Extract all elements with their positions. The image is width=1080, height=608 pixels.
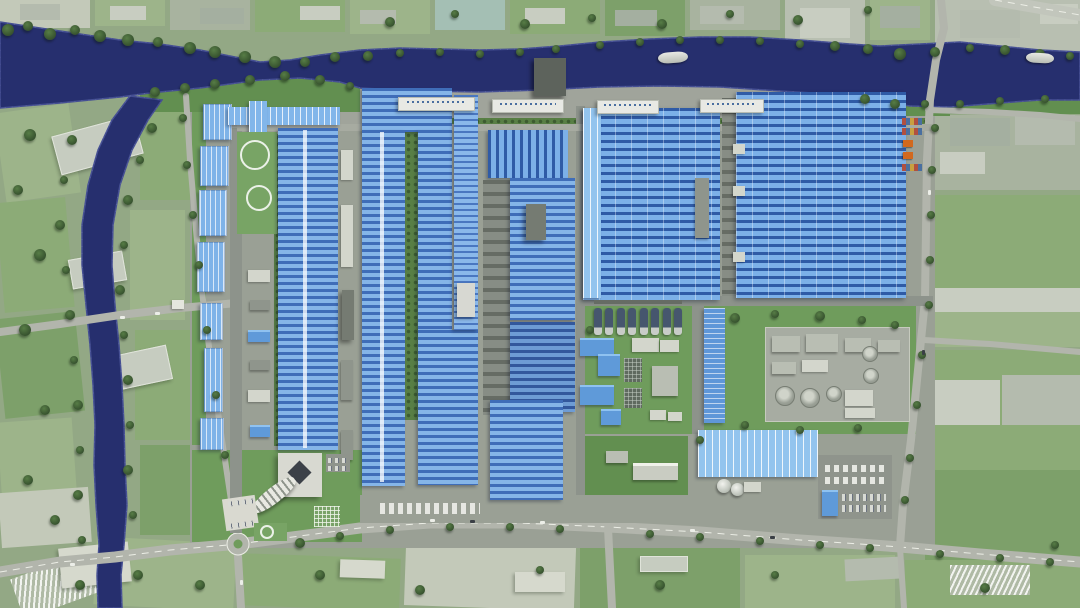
hall-b-ridge bbox=[380, 132, 384, 482]
truck-parking-row bbox=[825, 477, 885, 484]
tree bbox=[115, 285, 125, 295]
tree bbox=[586, 326, 594, 334]
clarifier-tank bbox=[775, 386, 795, 406]
tree bbox=[183, 161, 191, 169]
tree bbox=[906, 454, 914, 462]
tree bbox=[588, 14, 596, 22]
vent-unit bbox=[733, 186, 745, 196]
tree bbox=[123, 375, 133, 385]
small-hall bbox=[200, 303, 223, 340]
hall-d1-edge bbox=[583, 108, 601, 298]
tree bbox=[363, 51, 373, 61]
tree bbox=[75, 580, 85, 590]
car bbox=[70, 563, 75, 566]
tank-block bbox=[772, 362, 796, 374]
tree bbox=[78, 536, 86, 544]
tree bbox=[446, 523, 454, 531]
tree bbox=[925, 301, 933, 309]
tree bbox=[76, 446, 84, 454]
tree bbox=[516, 48, 524, 56]
tree bbox=[50, 515, 60, 525]
tree bbox=[126, 421, 134, 429]
cooling-pad bbox=[624, 388, 642, 408]
boiler-unit bbox=[640, 308, 648, 335]
tree bbox=[60, 176, 68, 184]
tree bbox=[336, 532, 344, 540]
gas-sphere bbox=[731, 483, 744, 496]
barge bbox=[1026, 52, 1054, 63]
tree bbox=[830, 41, 840, 51]
hall-c-low bbox=[510, 322, 575, 412]
tank-block bbox=[845, 408, 875, 418]
tree bbox=[1000, 45, 1010, 55]
tree bbox=[696, 533, 704, 541]
tree bbox=[184, 42, 196, 54]
tree bbox=[120, 241, 128, 249]
utility-shed bbox=[632, 338, 659, 352]
car bbox=[155, 312, 160, 315]
gas-cylinder bbox=[744, 482, 761, 492]
small-hall bbox=[200, 146, 229, 186]
container-row bbox=[902, 164, 922, 171]
tree bbox=[209, 46, 221, 58]
tree bbox=[815, 311, 825, 321]
car bbox=[120, 316, 125, 319]
tree bbox=[210, 79, 220, 89]
tree bbox=[55, 220, 65, 230]
park-path bbox=[246, 185, 272, 211]
tank-block bbox=[845, 390, 873, 406]
dock-highbay-tower bbox=[534, 58, 566, 96]
tree bbox=[854, 424, 862, 432]
tree bbox=[123, 465, 133, 475]
tree bbox=[70, 25, 80, 35]
shed-strip bbox=[250, 425, 270, 437]
tree bbox=[451, 10, 459, 18]
tree bbox=[19, 324, 31, 336]
tank-block bbox=[806, 334, 838, 352]
hall-d1-roof-unit bbox=[695, 178, 709, 238]
vent-unit bbox=[733, 252, 745, 262]
tree bbox=[94, 30, 106, 42]
hall-e bbox=[698, 430, 818, 477]
road-south-leg-3 bbox=[900, 548, 904, 608]
tree bbox=[203, 326, 211, 334]
campus-road-v3 bbox=[692, 300, 704, 434]
tree bbox=[23, 475, 33, 485]
tree bbox=[2, 24, 14, 36]
cooling-pad bbox=[624, 358, 642, 382]
tree bbox=[921, 100, 929, 108]
tree bbox=[62, 266, 70, 274]
truck-parking-row bbox=[825, 465, 885, 472]
tree bbox=[913, 401, 921, 409]
pipe-rack bbox=[594, 300, 682, 306]
hall-a bbox=[278, 128, 338, 450]
tree bbox=[123, 195, 133, 205]
car bbox=[690, 529, 695, 532]
hall-b-east-wide bbox=[418, 330, 478, 485]
tank-block bbox=[772, 336, 800, 352]
tree bbox=[136, 156, 144, 164]
utility-shed bbox=[650, 410, 666, 420]
tree bbox=[24, 129, 36, 141]
tree bbox=[70, 356, 78, 364]
boiler-unit bbox=[628, 308, 636, 335]
tree bbox=[129, 511, 137, 519]
tree bbox=[894, 48, 906, 60]
small-hall bbox=[204, 348, 223, 412]
mini-parking-row bbox=[328, 458, 348, 463]
tree bbox=[655, 580, 665, 590]
car-parking-row bbox=[842, 505, 886, 512]
dock-crane bbox=[903, 152, 913, 159]
hall-c-east bbox=[510, 178, 575, 320]
hall-c-top bbox=[488, 130, 568, 178]
tree bbox=[863, 44, 873, 54]
tank-block bbox=[878, 340, 900, 352]
tree bbox=[300, 57, 310, 67]
tree bbox=[996, 97, 1004, 105]
tree bbox=[315, 75, 325, 85]
boiler-unit bbox=[605, 308, 613, 335]
tree bbox=[1066, 52, 1074, 60]
tree bbox=[966, 44, 974, 52]
tree bbox=[153, 37, 163, 47]
boiler-unit bbox=[651, 308, 659, 335]
dock-warehouse bbox=[398, 97, 475, 111]
tree bbox=[239, 51, 251, 63]
tree bbox=[23, 21, 33, 31]
road-south-leg-2 bbox=[608, 528, 612, 608]
tree bbox=[295, 538, 305, 548]
tree bbox=[858, 316, 866, 324]
tree bbox=[73, 400, 83, 410]
tree bbox=[536, 566, 544, 574]
tree bbox=[636, 38, 644, 46]
tree bbox=[696, 436, 704, 444]
car bbox=[430, 519, 435, 522]
tree bbox=[415, 585, 425, 595]
hall-d2 bbox=[736, 92, 906, 298]
utility-block bbox=[652, 366, 678, 396]
tree bbox=[816, 541, 824, 549]
north-bar-hall bbox=[228, 107, 340, 125]
tree bbox=[930, 47, 940, 57]
tree bbox=[520, 19, 530, 29]
dock-warehouse bbox=[700, 99, 764, 113]
tree bbox=[386, 526, 394, 534]
tree bbox=[1041, 95, 1049, 103]
tree bbox=[120, 331, 128, 339]
tree bbox=[931, 124, 939, 132]
car-parking-row bbox=[842, 494, 886, 501]
tree bbox=[796, 40, 804, 48]
tree bbox=[269, 56, 281, 68]
tree bbox=[150, 87, 160, 97]
shed-strip bbox=[248, 390, 270, 402]
tree bbox=[771, 310, 779, 318]
dock-crane bbox=[903, 140, 913, 147]
container-row bbox=[902, 118, 922, 125]
tree bbox=[44, 28, 56, 40]
tree bbox=[726, 10, 734, 18]
road-south-main bbox=[238, 523, 1080, 562]
alley-tower bbox=[342, 290, 354, 340]
tree bbox=[245, 75, 255, 85]
clarifier-tank bbox=[826, 386, 842, 402]
hall-a-ridge bbox=[303, 130, 307, 448]
tree bbox=[34, 249, 46, 261]
tree bbox=[756, 537, 764, 545]
tree bbox=[1046, 558, 1054, 566]
tree bbox=[676, 36, 684, 44]
tree bbox=[980, 583, 990, 593]
tank-block bbox=[802, 360, 828, 372]
tree bbox=[891, 321, 899, 329]
tree bbox=[506, 523, 514, 531]
south-park-path bbox=[260, 525, 274, 539]
tree bbox=[65, 310, 75, 320]
tree bbox=[901, 496, 909, 504]
tree bbox=[280, 71, 290, 81]
utility-shed bbox=[660, 340, 679, 352]
tree bbox=[133, 570, 143, 580]
tree bbox=[13, 185, 23, 195]
dock-warehouse bbox=[597, 100, 659, 114]
car bbox=[470, 520, 475, 523]
tree bbox=[1051, 541, 1059, 549]
west-gatehouse bbox=[172, 300, 184, 309]
tree bbox=[556, 525, 564, 533]
tree bbox=[221, 451, 229, 459]
clarifier-tank bbox=[863, 368, 879, 384]
tree bbox=[927, 211, 935, 219]
boiler-unit bbox=[674, 308, 682, 335]
tree bbox=[396, 49, 404, 57]
car bbox=[770, 536, 775, 539]
hall-c-utility bbox=[483, 180, 510, 415]
conveyor-hall bbox=[704, 308, 725, 423]
tree bbox=[330, 52, 340, 62]
utility-shed bbox=[668, 412, 682, 421]
small-hall bbox=[200, 418, 224, 450]
shed-strip bbox=[250, 300, 270, 310]
boiler-unit bbox=[663, 308, 671, 335]
tree bbox=[346, 82, 354, 90]
shed-strip bbox=[250, 360, 270, 370]
maze-garden bbox=[314, 506, 340, 527]
tree bbox=[741, 421, 749, 429]
tree bbox=[657, 19, 667, 29]
tree bbox=[552, 45, 560, 53]
tree bbox=[793, 15, 803, 25]
tree bbox=[195, 261, 203, 269]
gas-sphere bbox=[717, 479, 731, 493]
tree bbox=[864, 6, 872, 14]
factory-aerial-view bbox=[0, 0, 1080, 608]
dock-warehouse bbox=[492, 99, 564, 113]
car bbox=[922, 350, 925, 355]
tree bbox=[67, 135, 77, 145]
alley-shed bbox=[341, 360, 353, 400]
utility-shed bbox=[580, 385, 614, 405]
shed-strip bbox=[248, 270, 270, 282]
solar-canopy bbox=[822, 490, 838, 516]
tree bbox=[73, 490, 83, 500]
car bbox=[540, 521, 545, 524]
tree bbox=[596, 41, 604, 49]
car bbox=[240, 580, 243, 585]
tree bbox=[730, 313, 740, 323]
weighbridge bbox=[606, 451, 628, 463]
tree bbox=[796, 426, 804, 434]
tree bbox=[860, 94, 870, 104]
tree bbox=[179, 114, 187, 122]
clarifier-tank bbox=[862, 346, 878, 362]
clarifier-tank bbox=[800, 388, 820, 408]
gatehouse-sign bbox=[633, 463, 678, 480]
road-river-east bbox=[928, 110, 1080, 119]
strip-b2-tower bbox=[457, 283, 475, 317]
tree bbox=[928, 166, 936, 174]
tree bbox=[476, 50, 484, 58]
tree bbox=[189, 211, 197, 219]
utility-shed bbox=[598, 354, 620, 376]
road-bridge-north bbox=[941, 0, 944, 28]
roundabout-island bbox=[234, 540, 243, 549]
road-east-spur bbox=[924, 340, 1080, 352]
mini-parking-row bbox=[328, 466, 348, 471]
container-row bbox=[902, 128, 922, 135]
hall-b-east bbox=[418, 130, 452, 332]
tree bbox=[956, 100, 964, 108]
tree bbox=[195, 580, 205, 590]
hall-c-bottom bbox=[490, 400, 563, 500]
car bbox=[928, 190, 931, 195]
utility-shed bbox=[601, 409, 621, 425]
tree bbox=[716, 36, 724, 44]
tree bbox=[646, 530, 654, 538]
shed-strip bbox=[248, 330, 270, 342]
tree bbox=[771, 571, 779, 579]
vent-unit bbox=[733, 144, 745, 154]
park-path bbox=[240, 140, 270, 170]
hall-c-tower bbox=[526, 204, 546, 240]
tree bbox=[866, 544, 874, 552]
tree bbox=[436, 48, 444, 56]
tree bbox=[756, 37, 764, 45]
tree bbox=[212, 391, 220, 399]
tree bbox=[926, 256, 934, 264]
tree bbox=[936, 550, 944, 558]
tree bbox=[890, 99, 900, 109]
alley-shed bbox=[341, 205, 353, 267]
truck-dock-row bbox=[380, 503, 480, 514]
tree bbox=[180, 83, 190, 93]
river-branch bbox=[82, 96, 162, 608]
alley-shed bbox=[341, 150, 353, 180]
small-hall bbox=[199, 190, 227, 236]
tree bbox=[315, 570, 325, 580]
tree bbox=[996, 554, 1004, 562]
tree bbox=[122, 34, 134, 46]
tree bbox=[385, 17, 395, 27]
boiler-unit bbox=[594, 308, 602, 335]
tree bbox=[40, 405, 50, 415]
boiler-unit bbox=[617, 308, 625, 335]
tree bbox=[147, 123, 157, 133]
